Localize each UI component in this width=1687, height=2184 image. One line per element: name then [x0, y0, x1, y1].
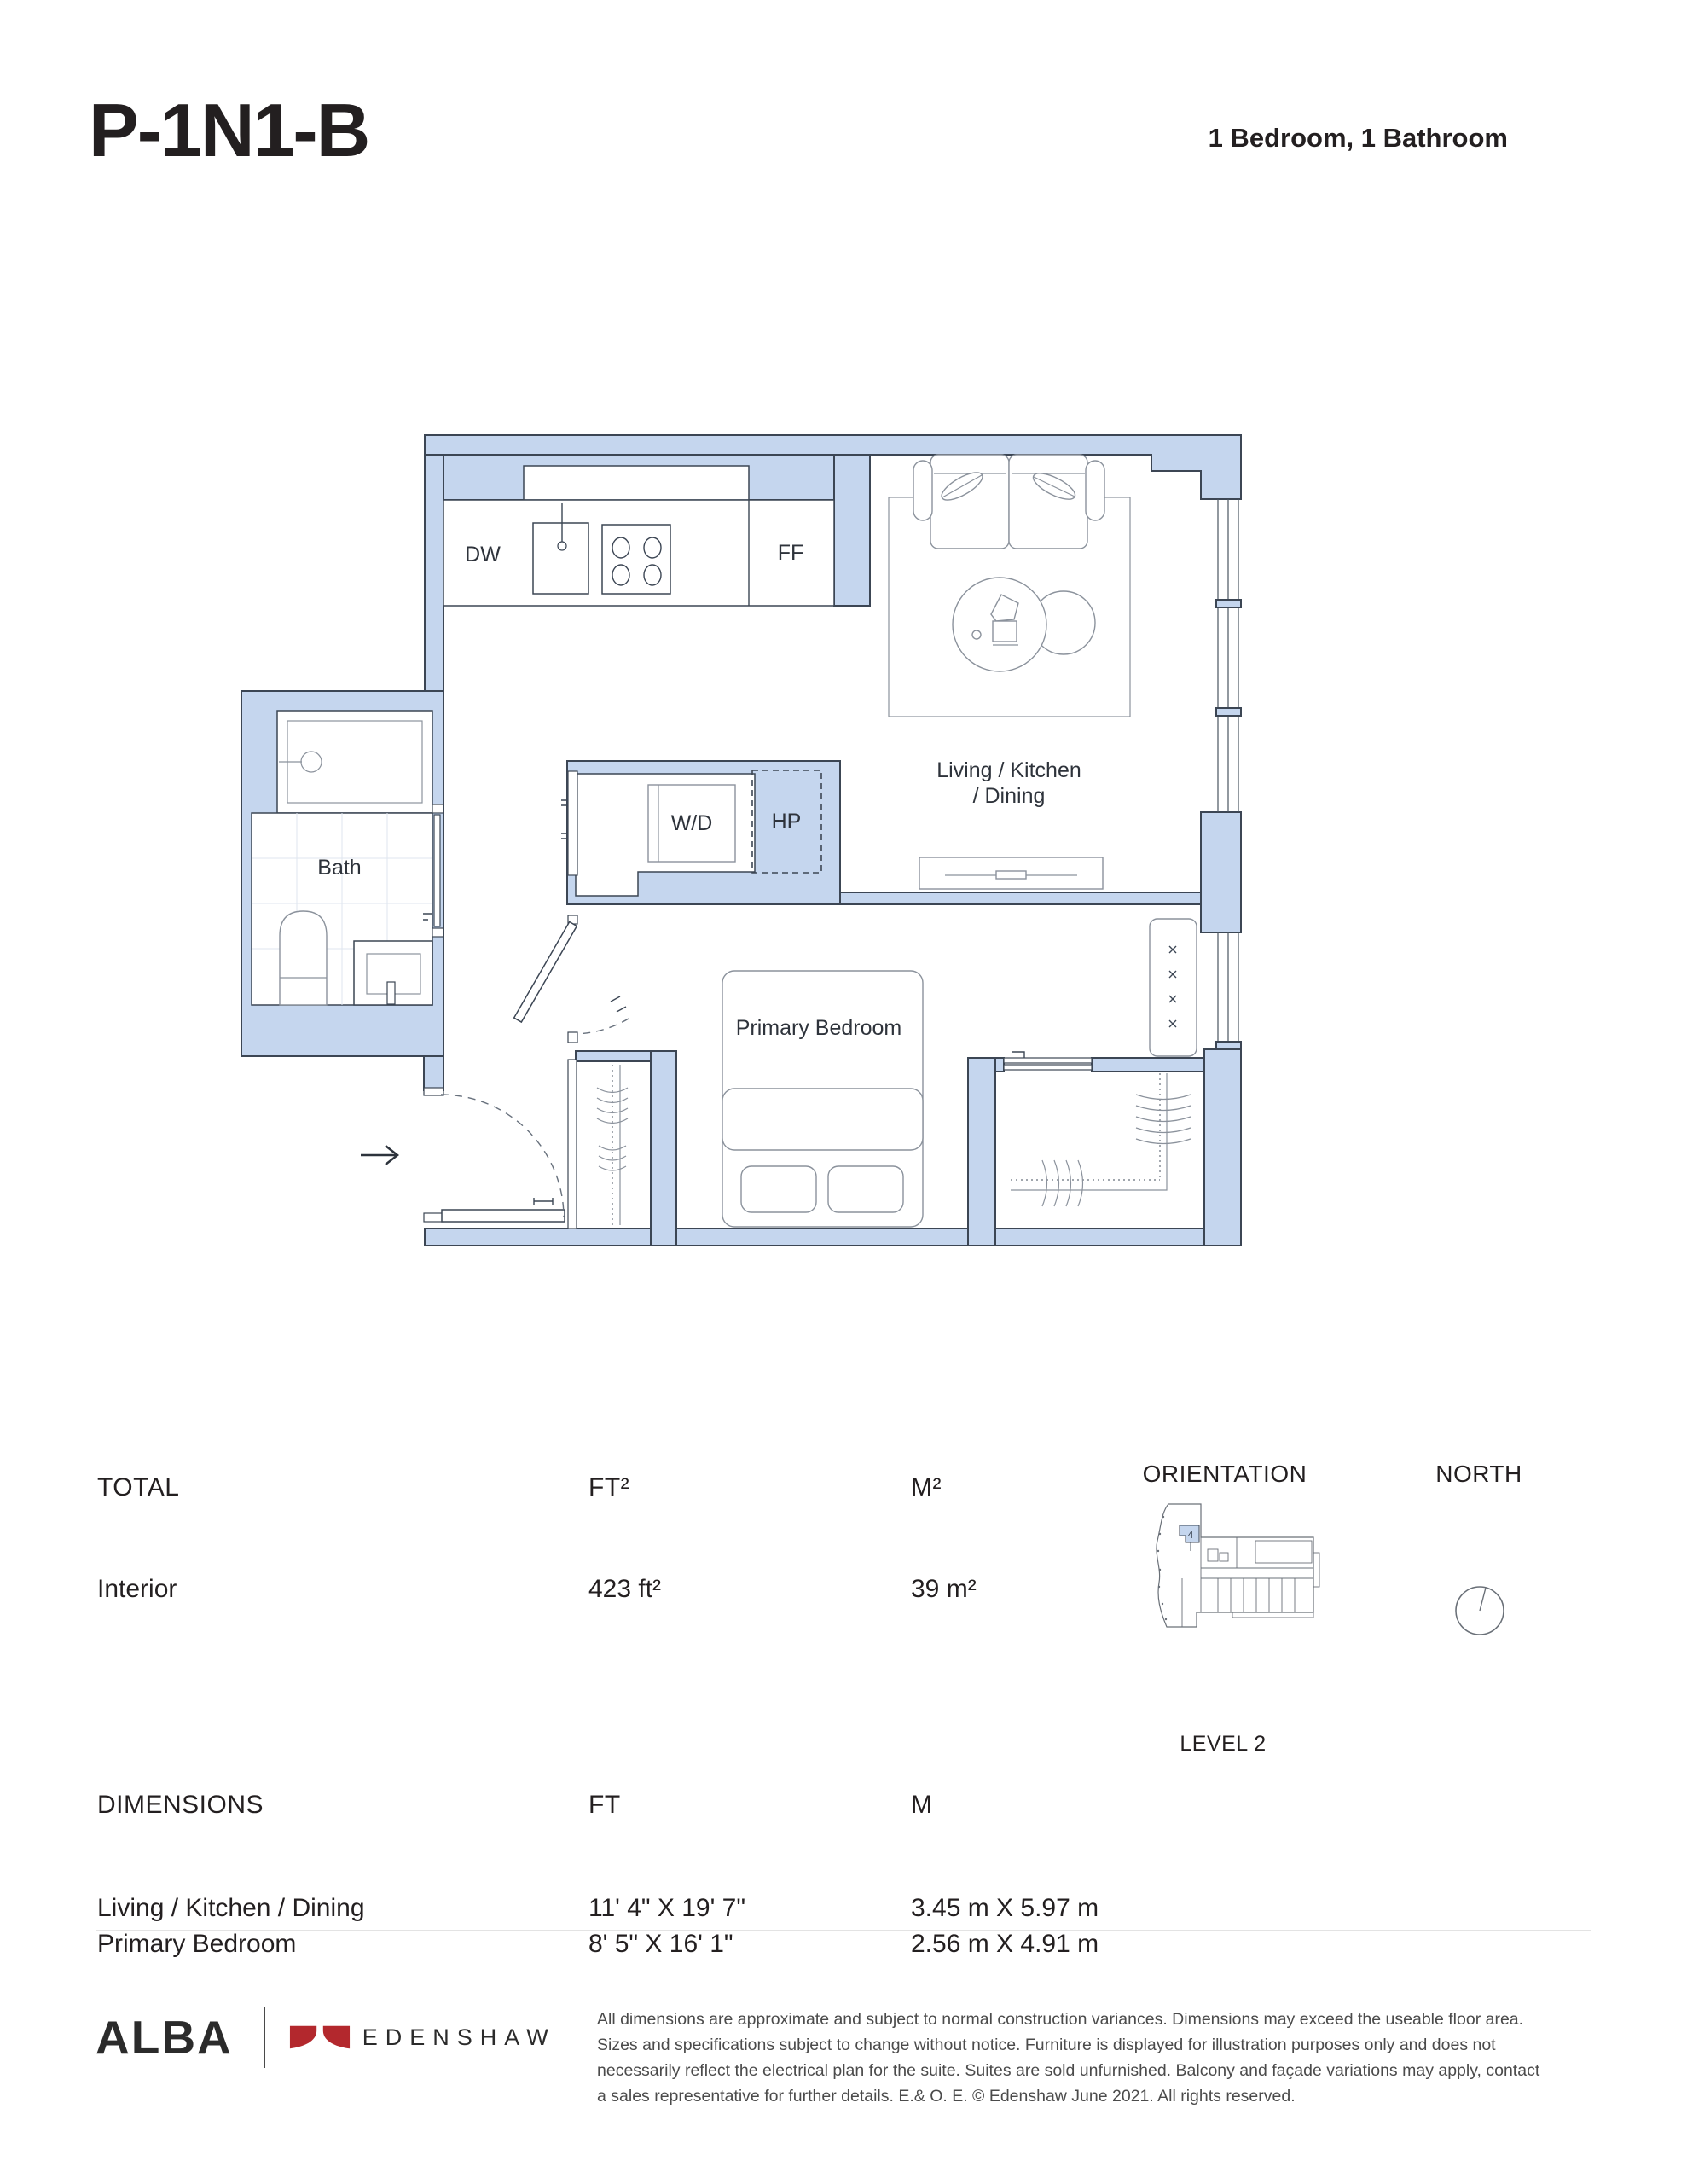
- entry-closet: [568, 1060, 628, 1228]
- sofa-seat: [930, 455, 1009, 549]
- alba-logo: ALBA: [96, 2010, 233, 2065]
- bedroom-door-leaf: [514, 922, 577, 1023]
- heat-pump-label: HP: [772, 810, 802, 834]
- unit-number-label: 4: [1188, 1529, 1194, 1541]
- entry-door-swing: [441, 1095, 564, 1217]
- bath-label: Bath: [317, 856, 361, 880]
- bath-door: [434, 815, 440, 926]
- wardrobe: [1150, 919, 1197, 1056]
- entry-closet-wall: [568, 1060, 577, 1228]
- dishwasher-label: DW: [465, 543, 501, 566]
- orientation-header: ORIENTATION: [1139, 1461, 1310, 1488]
- primary-bedroom: [722, 919, 1197, 1227]
- toilet-icon: [280, 911, 327, 1005]
- total-header: TOTAL: [97, 1473, 179, 1502]
- tv-icon: [996, 871, 1026, 879]
- floorplan-sheet: P-1N1-B 1 Bedroom, 1 Bathroom: [0, 0, 1687, 2184]
- laundry-door: [568, 771, 577, 875]
- dim-row-label: Primary Bedroom: [97, 1930, 296, 1959]
- hanging-clothes-icon: [1042, 1160, 1083, 1206]
- stove: [602, 525, 670, 594]
- edenshaw-wordmark: EDENSHAW: [362, 2024, 556, 2051]
- ft2-header: FT²: [588, 1473, 629, 1502]
- hanging-clothes-icon: [1136, 1095, 1191, 1144]
- legal-disclaimer: All dimensions are approximate and subje…: [597, 2007, 1552, 2109]
- total-row-ft: 423 ft²: [588, 1575, 661, 1604]
- edenshaw-mark-icon: [289, 2024, 351, 2050]
- m2-header: M²: [911, 1473, 942, 1502]
- total-row-label: Interior: [97, 1575, 177, 1604]
- dim-row-ft: 8' 5" X 16' 1": [588, 1930, 733, 1959]
- total-row-m: 39 m²: [911, 1575, 977, 1604]
- dim-row-ft: 11' 4" X 19' 7": [588, 1894, 745, 1923]
- dimensions-header: DIMENSIONS: [97, 1791, 264, 1820]
- fridge-label: FF: [778, 541, 804, 565]
- north-compass-icon: [1447, 1577, 1512, 1641]
- kitchen-sink: [533, 523, 588, 594]
- page-title: P-1N1-B: [89, 87, 368, 174]
- sofa-armrest: [913, 461, 932, 520]
- floor-plan: DW FF W/D HP Bath Living / Kitchen / Din…: [230, 418, 1254, 1258]
- footer-divider: [96, 1930, 1591, 1931]
- sliding-door: [1004, 1065, 1092, 1070]
- living-room: [889, 455, 1130, 889]
- bed-blanket: [722, 1089, 923, 1150]
- dim-row-label: Living / Kitchen / Dining: [97, 1894, 365, 1923]
- edenshaw-logo: EDENSHAW: [289, 2024, 556, 2051]
- bedroom-closet: [1004, 1052, 1191, 1206]
- unit-configuration: 1 Bedroom, 1 Bathroom: [1209, 123, 1508, 154]
- dim-row-m: 2.56 m X 4.91 m: [911, 1930, 1099, 1959]
- m-header: M: [911, 1791, 933, 1820]
- sofa-armrest: [1086, 461, 1104, 520]
- dim-row-m: 3.45 m X 5.97 m: [911, 1894, 1099, 1923]
- entry: [361, 1088, 565, 1222]
- bedroom-door: [514, 915, 629, 1043]
- upper-cabinet: [524, 466, 749, 500]
- pillow: [741, 1166, 816, 1212]
- footer-logos: ALBA EDENSHAW: [96, 2007, 556, 2068]
- sliding-door: [1004, 1058, 1092, 1063]
- bedroom-door-swing: [576, 1019, 629, 1034]
- living-label-line2: / Dining: [973, 784, 1046, 808]
- pillow: [828, 1166, 903, 1212]
- orientation-keyplan: 4: [1143, 1501, 1330, 1647]
- sofa-seat: [1009, 455, 1087, 549]
- washer-dryer-label: W/D: [671, 811, 713, 835]
- faucet-icon: [558, 542, 566, 550]
- ft-header: FT: [588, 1791, 621, 1820]
- primary-bedroom-label: Primary Bedroom: [736, 1016, 902, 1040]
- window-wall: [1218, 499, 1238, 1049]
- entry-door: [442, 1210, 565, 1222]
- living-label-line1: Living / Kitchen: [936, 758, 1081, 782]
- level-caption: LEVEL 2: [1138, 1732, 1308, 1757]
- north-header: NORTH: [1394, 1461, 1564, 1488]
- logo-separator: [264, 2007, 265, 2068]
